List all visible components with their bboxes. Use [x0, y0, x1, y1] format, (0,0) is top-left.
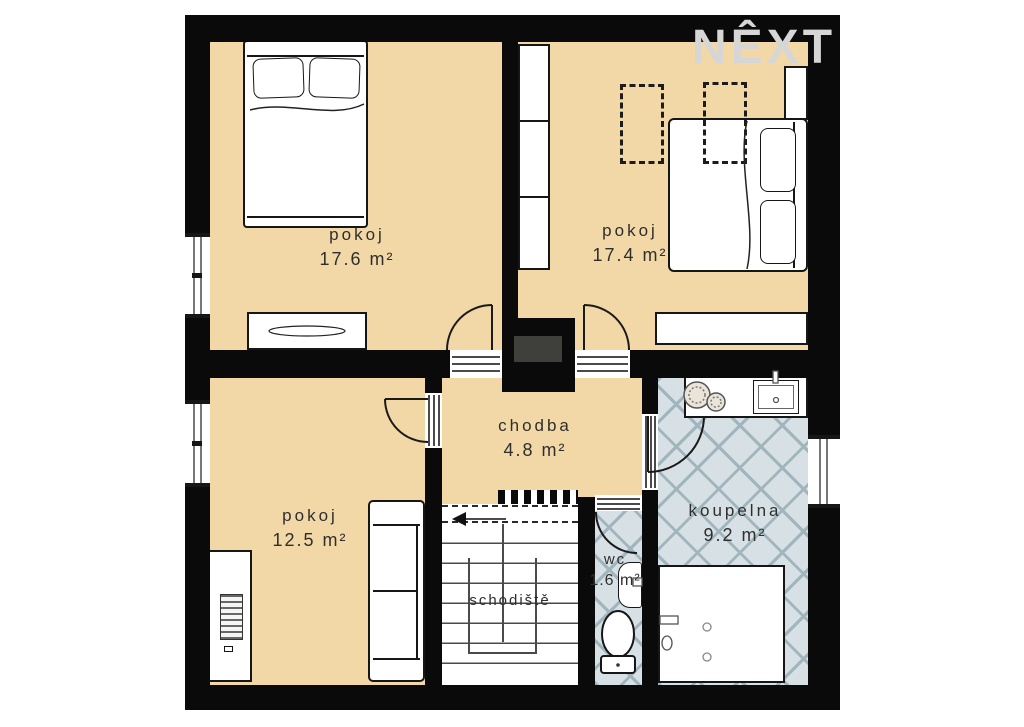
threshold-line: [577, 356, 628, 358]
wall-bottom: [185, 685, 840, 710]
room-name: pokoj: [225, 505, 395, 528]
room-label-pokoj-tr: pokoj 17.4 m²: [545, 220, 715, 267]
floor-plan: pokoj 17.6 m² pokoj 17.4 m² chodba 4.8 m…: [0, 0, 1024, 727]
room-label-chodba: chodba 4.8 m²: [450, 415, 620, 462]
room-area: 17.4 m²: [545, 243, 715, 267]
low-cabinet: [655, 312, 808, 345]
room-name: wc: [583, 550, 647, 570]
sink-basin: [758, 385, 794, 409]
window-cap: [185, 400, 210, 404]
room-name: chodba: [450, 415, 620, 438]
threshold-line: [433, 395, 435, 446]
wall-interior-horizontal: [630, 350, 808, 378]
threshold-line: [597, 498, 640, 500]
threshold-line: [438, 395, 440, 446]
sink-icon: [753, 380, 799, 414]
threshold-line: [577, 363, 628, 365]
bed-headboard-line: [247, 55, 364, 57]
pillow: [760, 128, 796, 192]
room-label-koupelna: koupelna 9.2 m²: [650, 500, 820, 547]
sofa-cushion-divider: [373, 590, 416, 592]
threshold-line: [645, 416, 647, 488]
window-bathroom: [808, 435, 840, 508]
pillow: [252, 57, 304, 99]
threshold-line: [650, 416, 652, 488]
room-name: koupelna: [650, 500, 820, 523]
pillow: [308, 57, 360, 99]
room-name: pokoj: [545, 220, 715, 243]
window-glazing-line: [826, 438, 828, 505]
threshold-line: [577, 370, 628, 372]
threshold-line: [428, 395, 430, 446]
double-bed: [243, 40, 368, 228]
pillow: [760, 200, 796, 264]
wall-interior-horizontal: [210, 350, 450, 378]
window-mullion: [192, 273, 202, 278]
room-area: 4.8 m²: [450, 438, 620, 462]
door-threshold: [450, 350, 502, 378]
wardrobe-divider: [520, 196, 548, 198]
room-label-wc: wc 1.6 m²: [583, 550, 647, 592]
room-label-pokoj-tl: pokoj 17.6 m²: [272, 224, 442, 271]
room-label-pokoj-bl: pokoj 12.5 m²: [225, 505, 395, 552]
desk: [210, 550, 252, 682]
sofa-backrest-line: [416, 524, 418, 659]
wall-room-stairs: [425, 448, 442, 685]
door-threshold: [425, 393, 442, 448]
staircase-railing-balusters: [498, 490, 578, 504]
shower-tub: [658, 565, 785, 683]
staircase-dashed-line: [442, 521, 578, 523]
window-cap: [185, 233, 210, 237]
staircase-dashed-line: [442, 505, 578, 507]
threshold-line: [597, 508, 640, 510]
wardrobe-divider: [520, 120, 548, 122]
room-area: 1.6 m²: [583, 570, 647, 592]
room-area: 17.6 m²: [272, 247, 442, 271]
room-area: 12.5 m²: [225, 528, 395, 552]
window: [185, 233, 210, 318]
next-logo: NÊXT: [692, 22, 836, 75]
door-threshold: [642, 414, 658, 490]
door-threshold: [575, 350, 630, 378]
planned-wardrobe-outline: [620, 84, 664, 164]
wall-room-corridor-stub: [425, 378, 442, 393]
door-threshold: [595, 495, 642, 511]
window-glazing-line: [819, 438, 821, 505]
dresser: [247, 312, 367, 350]
threshold-line: [597, 503, 640, 505]
window-cap: [808, 435, 840, 439]
threshold-line: [654, 416, 656, 488]
chimney-flue: [514, 336, 562, 362]
wall-right-upper: [808, 15, 840, 435]
threshold-line: [452, 356, 500, 358]
wall-between-bedrooms: [502, 42, 518, 318]
keyboard-icon: [220, 594, 243, 640]
room-area: 9.2 m²: [650, 523, 820, 547]
room-name: pokoj: [272, 224, 442, 247]
wall-left: [185, 15, 210, 710]
threshold-line: [452, 370, 500, 372]
staircase-rail-line: [468, 652, 536, 654]
threshold-line: [452, 363, 500, 365]
window-cap: [185, 314, 210, 318]
sofa-armrest-line: [373, 658, 420, 660]
window-mullion: [192, 441, 202, 446]
bed-foot-line: [247, 216, 364, 218]
mouse-icon: [224, 646, 233, 652]
window-cap: [185, 483, 210, 487]
window: [185, 400, 210, 487]
planned-wardrobe-outline: [703, 82, 747, 164]
room-label-schodiste: schodiště: [440, 592, 580, 609]
staircase-center-line: [502, 524, 504, 642]
